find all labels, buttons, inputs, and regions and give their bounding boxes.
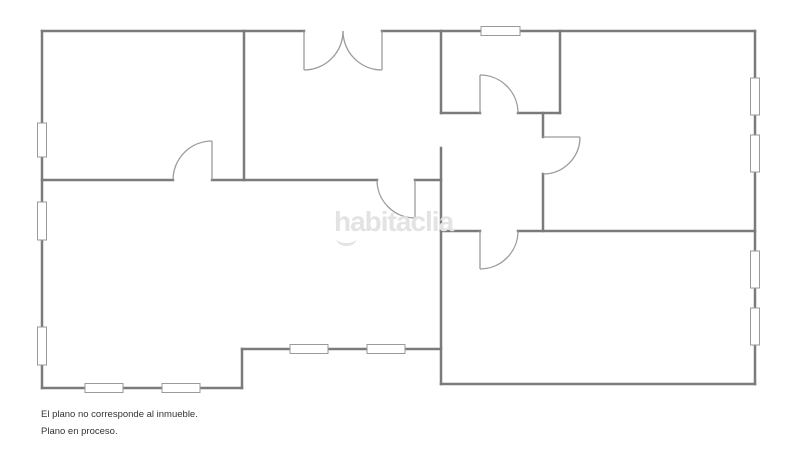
door-right-room-swing-arc xyxy=(543,137,580,174)
window xyxy=(751,135,760,172)
window xyxy=(751,78,760,115)
floorplan-image: habitaclia El plano no corresponde al in… xyxy=(0,0,800,450)
window xyxy=(290,345,328,354)
disclaimer: El plano no corresponde al inmueble. Pla… xyxy=(41,406,198,440)
window xyxy=(751,251,760,288)
door-bottom-right-room-swing-arc xyxy=(480,231,518,269)
window xyxy=(85,384,123,393)
entrance-double-door-right-swing-arc xyxy=(343,31,382,70)
disclaimer-line-1: El plano no corresponde al inmueble. xyxy=(41,406,198,423)
door-top-left-room-swing-arc xyxy=(173,141,212,180)
watermark: habitaclia xyxy=(334,207,453,237)
window xyxy=(38,123,47,157)
door-small-room-swing-arc xyxy=(480,75,518,113)
window xyxy=(481,27,520,36)
window xyxy=(38,327,47,365)
disclaimer-line-2: Plano en proceso. xyxy=(41,423,198,440)
entrance-double-door-left-swing-arc xyxy=(304,31,343,70)
window xyxy=(162,384,200,393)
window xyxy=(751,308,760,345)
window xyxy=(367,345,405,354)
window xyxy=(38,202,47,240)
